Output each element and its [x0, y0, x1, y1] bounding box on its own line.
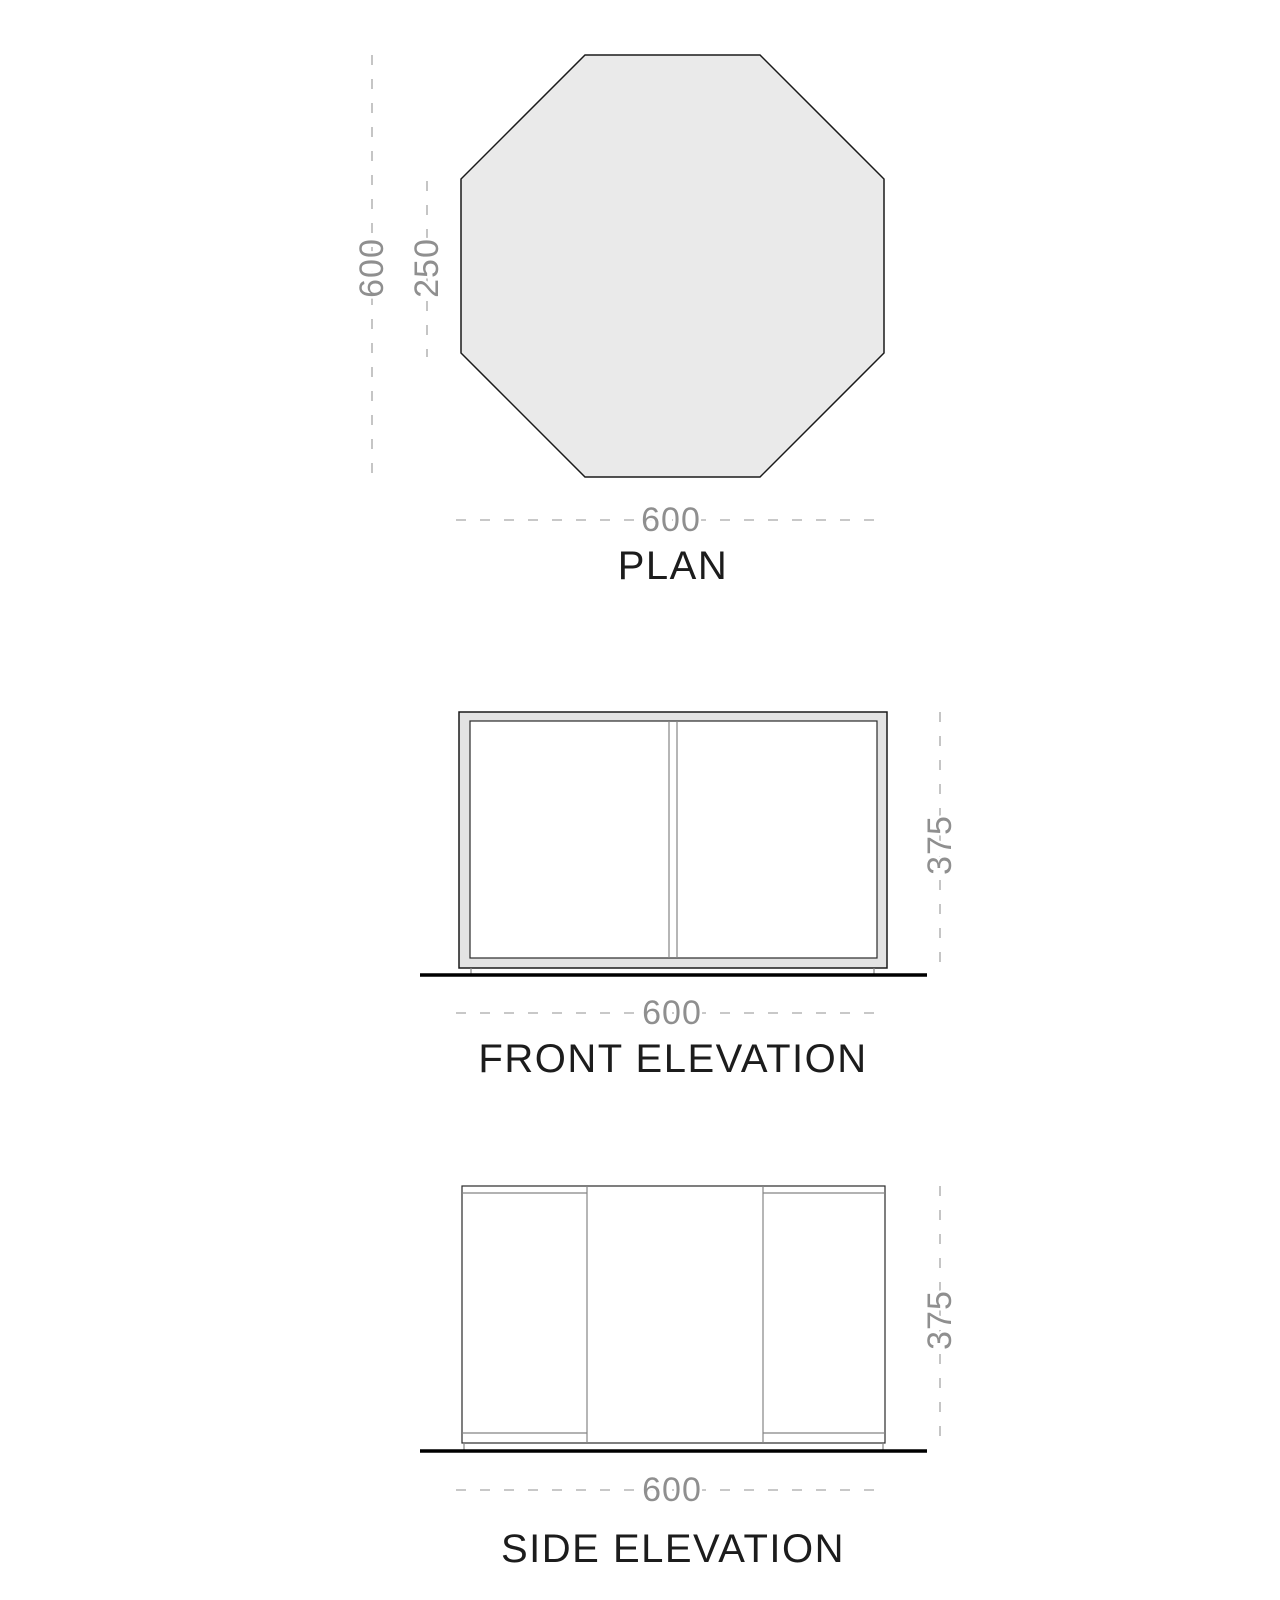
plan-dim-label-width-600: 600	[641, 501, 701, 539]
view-title-front-elevation: FRONT ELEVATION	[478, 1037, 867, 1081]
front-frame-left	[459, 712, 470, 968]
front-dim-label-width-600: 600	[642, 994, 702, 1032]
side-dim-label-height-375: 375	[921, 1290, 959, 1350]
side-elevation-view: 375 600 SIDE ELEVATION	[420, 1186, 959, 1571]
plan-octagon-tabletop	[461, 55, 884, 477]
plan-dim-label-edge-250: 250	[408, 238, 446, 298]
side-outer-outline	[462, 1186, 885, 1443]
front-elevation-view: 375 600 FRONT ELEVATION	[420, 712, 959, 1081]
front-outer-body	[459, 712, 887, 968]
front-frame-bottom	[459, 958, 887, 968]
front-frame-top	[459, 712, 887, 721]
technical-drawing: 600 250 600 PLAN 375 600	[0, 0, 1280, 1600]
side-dim-label-width-600: 600	[642, 1471, 702, 1509]
plan-view: 600 250 600 PLAN	[353, 55, 884, 588]
front-frame-right	[877, 712, 887, 968]
view-title-plan: PLAN	[618, 544, 729, 588]
view-title-side-elevation: SIDE ELEVATION	[501, 1527, 845, 1571]
front-dim-label-height-375: 375	[921, 815, 959, 875]
drawing-sheet: 600 250 600 PLAN 375 600	[0, 0, 1280, 1600]
plan-dim-label-height-600: 600	[353, 238, 391, 298]
